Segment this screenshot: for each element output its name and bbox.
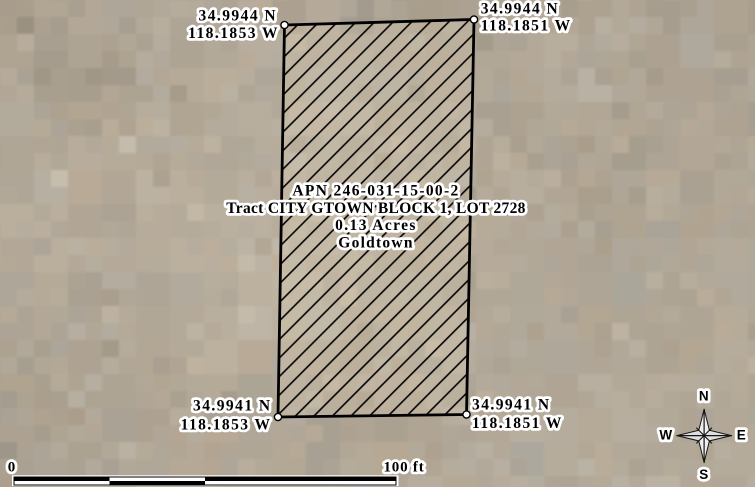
svg-text:34.9941 N: 34.9941 N [193,398,272,415]
svg-text:34.9944 N: 34.9944 N [481,1,560,18]
svg-text:100 ft: 100 ft [383,459,424,475]
svg-text:Tract CITY GTOWN BLOCK 1, LOT: Tract CITY GTOWN BLOCK 1, LOT 2728 [226,200,525,217]
svg-text:118.1853 W: 118.1853 W [181,416,272,433]
svg-text:34.9941 N: 34.9941 N [472,397,551,414]
svg-text:E: E [737,428,746,443]
svg-text:118.1851 W: 118.1851 W [472,415,563,432]
svg-text:0.13 Acres: 0.13 Acres [335,217,417,234]
svg-text:0: 0 [8,459,16,475]
svg-text:APN 246-031-15-00-2: APN 246-031-15-00-2 [292,183,459,200]
svg-text:34.9944 N: 34.9944 N [199,7,278,24]
svg-text:Goldtown: Goldtown [338,234,413,251]
svg-text:118.1853 W: 118.1853 W [188,25,279,42]
svg-text:W: W [659,428,672,443]
svg-text:S: S [699,467,708,482]
svg-text:118.1851 W: 118.1851 W [481,18,572,35]
svg-text:N: N [699,388,709,403]
